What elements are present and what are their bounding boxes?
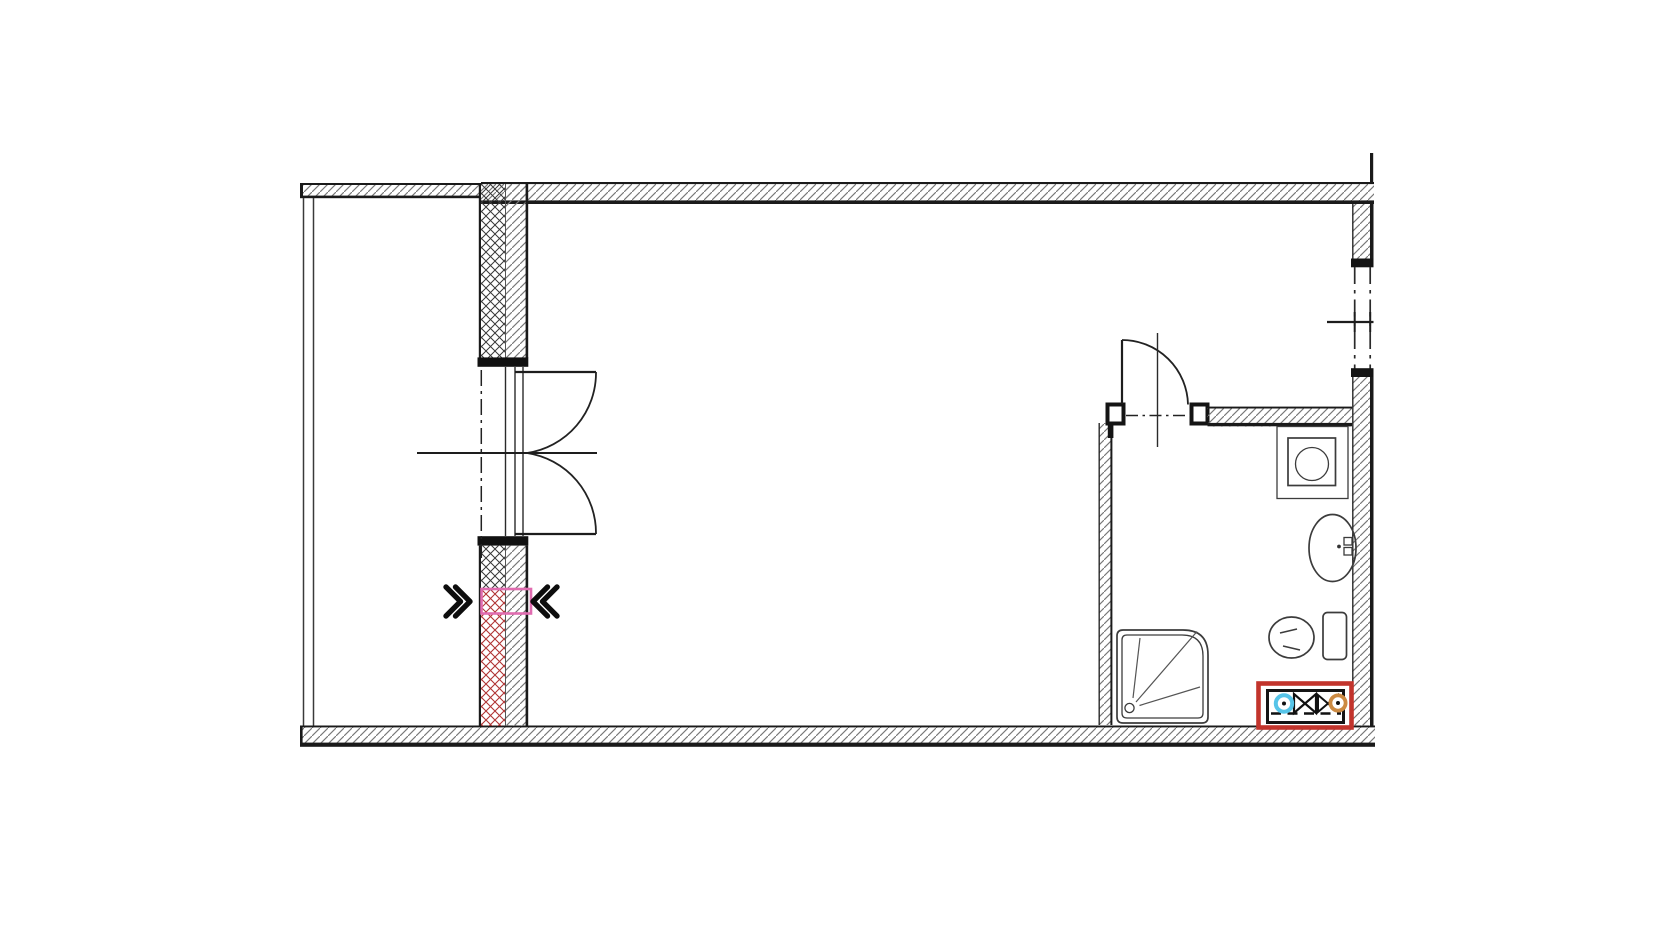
partition-lower-segment	[479, 546, 528, 726]
bathroom-top-wall-inner-edge	[1208, 423, 1353, 426]
valve-center-dot	[1336, 701, 1340, 705]
top-wall-left-cap	[300, 183, 303, 198]
partition-lower-right-edge	[526, 546, 529, 726]
washing-machine	[1277, 427, 1348, 499]
door-swing-arc-top	[527, 372, 596, 453]
right-window-bottom-cap	[1351, 368, 1374, 377]
bottom-wall-inner-edge	[300, 726, 1375, 728]
partition-upper-segment	[479, 184, 528, 358]
bathroom-door	[1122, 333, 1190, 447]
bathroom-left-wall-hatch	[1099, 423, 1113, 725]
breach-arrow-left	[446, 587, 470, 616]
shower-spray-line	[1133, 638, 1140, 698]
bottom-wall-left-cap	[300, 726, 303, 747]
top-wall-main	[481, 182, 1374, 204]
partition-lower-insulation-black	[481, 546, 505, 591]
bathroom-top-wall-outer-edge	[1208, 407, 1353, 409]
top-wall-balcony	[300, 183, 481, 198]
shower-spray-line	[1136, 632, 1197, 703]
top-wall-balcony-inner-edge	[300, 196, 481, 199]
right-wall-top-stub	[1370, 153, 1373, 183]
valve-center-dot	[1282, 702, 1286, 706]
top-wall-main-inner-edge	[481, 200, 1374, 204]
utility-connection-unit	[1259, 684, 1352, 728]
shower-tray	[1117, 630, 1208, 723]
toilet-cistern	[1323, 613, 1347, 660]
breach-arrow-right	[533, 587, 557, 616]
partition-upper-left-edge	[479, 184, 481, 358]
bathroom-door-jamb-right	[1192, 405, 1208, 424]
toilet-bowl	[1269, 617, 1314, 658]
bathroom-door-jamb-left	[1108, 405, 1124, 424]
shower-spray-line	[1140, 687, 1201, 706]
right-wall-lower-outer-edge	[1370, 377, 1374, 726]
right-wall-upper-outer-edge	[1370, 204, 1374, 267]
door-swing-arc-bottom	[527, 453, 596, 534]
washbasin-faucet-icon	[1344, 538, 1352, 546]
left-glazing-wall	[304, 198, 314, 726]
partition-upper-hatch	[506, 184, 527, 358]
top-wall-main-outer-edge	[481, 182, 1374, 184]
right-wall	[1327, 153, 1374, 726]
toilet-mark	[1283, 646, 1300, 650]
floor-plan-canvas	[0, 0, 1680, 945]
partition-lower-hatch	[506, 546, 527, 726]
washing-machine-drum-icon	[1296, 448, 1329, 481]
door-jamb-cap-bottom	[478, 536, 529, 545]
washbasin	[1309, 515, 1356, 582]
shower-drain-icon	[1125, 703, 1134, 712]
washbasin-drain-dot	[1337, 545, 1341, 549]
shower-tray-inner	[1122, 635, 1203, 718]
door-jamb-cap-top	[478, 357, 529, 366]
toilet	[1269, 613, 1347, 660]
balcony-partition-wall	[478, 184, 529, 726]
bottom-wall	[300, 726, 1375, 747]
bathroom-top-wall	[1208, 407, 1353, 427]
bottom-wall-outer-edge	[300, 743, 1375, 747]
partition-upper-insulation	[481, 184, 505, 358]
bathroom-fixtures	[1117, 427, 1356, 728]
top-wall-balcony-outer-edge	[300, 183, 481, 185]
toilet-mark	[1280, 629, 1297, 633]
balcony-double-door	[417, 367, 597, 558]
partition-lower-left-edge	[479, 546, 481, 726]
partition-lower-insulation-red	[481, 591, 505, 727]
bathroom-left-wall	[1099, 421, 1114, 725]
perimeter-walls	[300, 153, 1375, 747]
washbasin-faucet-icon	[1344, 548, 1352, 556]
right-window	[1327, 267, 1374, 377]
right-window-top-cap	[1351, 259, 1374, 268]
partition-upper-right-edge	[526, 184, 529, 358]
shower-tray-outline	[1117, 630, 1208, 723]
bathroom-door-swing-arc	[1122, 340, 1188, 405]
floor-plan-drawing	[0, 0, 1680, 945]
